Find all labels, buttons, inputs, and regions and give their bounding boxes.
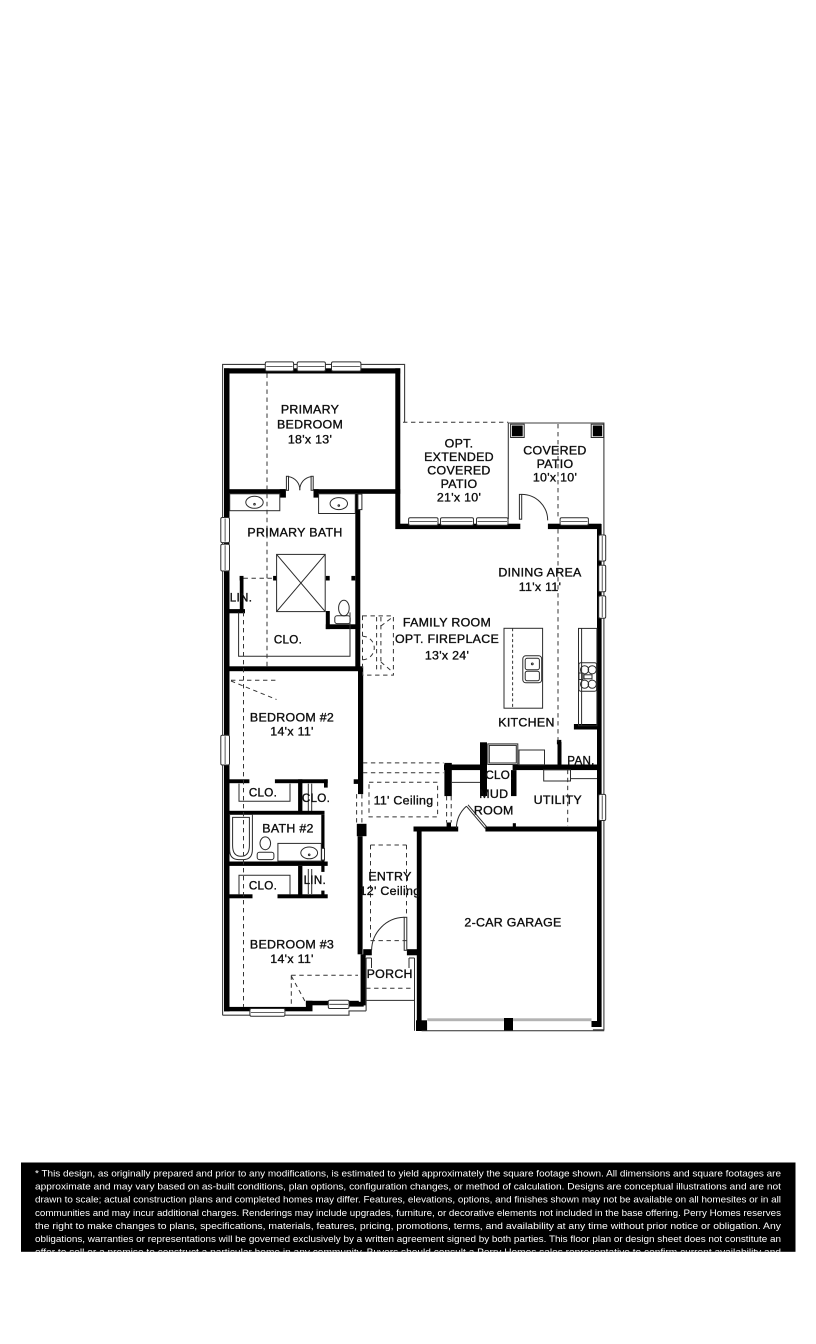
- svg-text:LIN.: LIN.: [304, 874, 326, 887]
- svg-text:ROOM: ROOM: [474, 804, 514, 818]
- svg-text:KITCHEN: KITCHEN: [498, 716, 555, 730]
- svg-text:21'x 10': 21'x 10': [437, 491, 481, 505]
- svg-text:PRIMARY: PRIMARY: [281, 403, 339, 417]
- svg-text:EXTENDED: EXTENDED: [424, 450, 494, 464]
- svg-text:BEDROOM #3: BEDROOM #3: [250, 938, 334, 952]
- svg-text:COVERED: COVERED: [427, 464, 490, 478]
- svg-text:BEDROOM #2: BEDROOM #2: [250, 711, 334, 725]
- svg-text:PAN.: PAN.: [567, 755, 594, 768]
- svg-text:PORCH: PORCH: [367, 967, 413, 981]
- svg-text:18'x 13': 18'x 13': [288, 433, 332, 447]
- svg-text:obligations, warranties or rep: obligations, warranties or representatio…: [35, 1234, 781, 1244]
- svg-text:approximate and may vary base: approximate and may vary based on as-bui…: [35, 1182, 781, 1192]
- svg-text:14'x 11': 14'x 11': [270, 725, 313, 739]
- svg-text:13'x 24': 13'x 24': [425, 649, 469, 663]
- svg-text:CLO.: CLO.: [274, 634, 302, 647]
- svg-text:drawn to scale; actual constru: drawn to scale; actual construction plan…: [35, 1195, 781, 1205]
- svg-text:the right to make changes to: the right to make changes to plans, spec…: [35, 1221, 781, 1231]
- svg-text:11' Ceiling: 11' Ceiling: [374, 794, 434, 808]
- svg-text:* This design, as originally p: * This design, as originally prepared an…: [35, 1169, 781, 1179]
- svg-text:COVERED: COVERED: [523, 444, 586, 458]
- svg-text:CLO.: CLO.: [249, 787, 277, 800]
- svg-text:FAMILY ROOM: FAMILY ROOM: [403, 616, 491, 630]
- svg-text:CLO.: CLO.: [302, 792, 330, 805]
- svg-text:UTILITY: UTILITY: [534, 793, 582, 807]
- svg-text:LIN.: LIN.: [230, 592, 252, 605]
- svg-text:BEDROOM: BEDROOM: [277, 418, 343, 432]
- svg-text:12' Ceiling: 12' Ceiling: [360, 884, 421, 898]
- svg-text:PATIO: PATIO: [441, 477, 478, 491]
- svg-text:OPT. FIREPLACE: OPT. FIREPLACE: [395, 632, 499, 646]
- svg-text:BATH #2: BATH #2: [262, 822, 313, 836]
- svg-text:communities and may incur addi: communities and may incur additional cha…: [35, 1208, 781, 1218]
- svg-text:OPT.: OPT.: [445, 437, 474, 451]
- svg-text:MUD: MUD: [479, 787, 508, 801]
- svg-text:PRIMARY BATH: PRIMARY BATH: [247, 526, 342, 540]
- svg-text:DINING AREA: DINING AREA: [498, 566, 582, 580]
- svg-text:11'x 11': 11'x 11': [519, 580, 562, 594]
- svg-text:14'x 11': 14'x 11': [270, 952, 313, 966]
- svg-text:CLO.: CLO.: [485, 769, 513, 782]
- svg-text:PATIO: PATIO: [537, 457, 574, 471]
- svg-text:ENTRY: ENTRY: [368, 870, 411, 884]
- svg-text:2-CAR GARAGE: 2-CAR GARAGE: [464, 916, 561, 930]
- svg-text:CLO.: CLO.: [249, 880, 277, 893]
- svg-text:10'x 10': 10'x 10': [533, 471, 577, 485]
